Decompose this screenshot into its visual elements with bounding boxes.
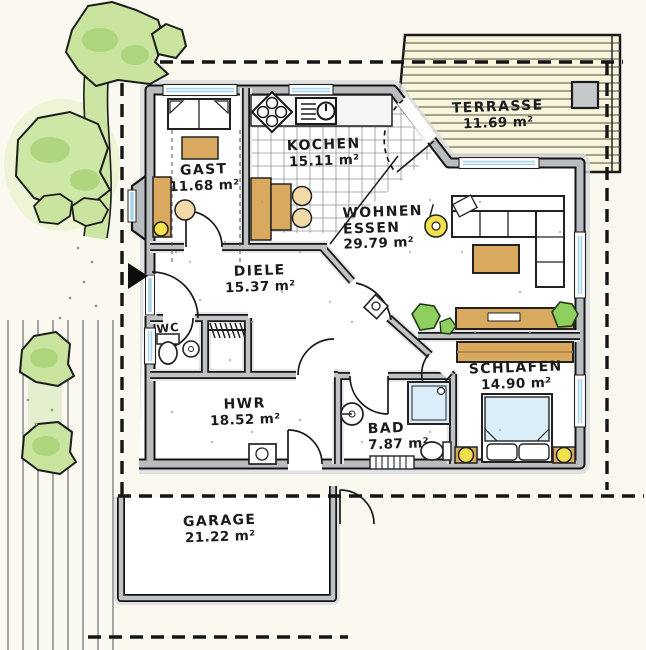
- washing-machine-icon: [249, 444, 276, 464]
- floor-plan-canvas: TERRASSE 11.69 m² KOCHEN 15.11 m² GAST 1…: [0, 0, 646, 650]
- sideboard-tray: [488, 313, 520, 321]
- toilet-icon: [421, 442, 451, 460]
- pillow: [519, 444, 549, 460]
- guest-rug: [182, 137, 218, 159]
- window-wc-left: [145, 328, 156, 364]
- coffee-table: [473, 245, 519, 273]
- window-bay: [128, 190, 136, 222]
- kitchen-cabinet: [251, 178, 271, 240]
- lamp-icon: [154, 222, 168, 236]
- tree: [66, 2, 168, 86]
- lamp-icon: [459, 448, 474, 463]
- sofa-seats: [452, 211, 536, 237]
- window-bedroom-right: [575, 375, 586, 427]
- shower-icon: [408, 382, 450, 424]
- pillow: [487, 444, 517, 460]
- window-kitchen-top: [289, 85, 333, 96]
- small-basin-icon: [183, 341, 199, 357]
- window-living-top: [459, 158, 539, 169]
- washbasin-icon: [341, 403, 363, 425]
- window-living-right: [575, 232, 586, 298]
- radiator-icon: [370, 456, 414, 469]
- kitchen-chair: [293, 209, 312, 228]
- bush: [16, 112, 110, 208]
- kitchen-chair: [293, 187, 312, 206]
- sofa-corner: [536, 211, 564, 287]
- toilet-icon: [157, 334, 179, 364]
- bush: [72, 198, 108, 226]
- terrace-post: [572, 82, 598, 108]
- kitchen-table: [271, 184, 291, 230]
- oven-icon: [296, 98, 336, 124]
- window-gast-top: [163, 85, 237, 96]
- floor-plan-drawing: [0, 0, 646, 650]
- guest-stool: [175, 200, 195, 220]
- lamp-icon: [557, 448, 572, 463]
